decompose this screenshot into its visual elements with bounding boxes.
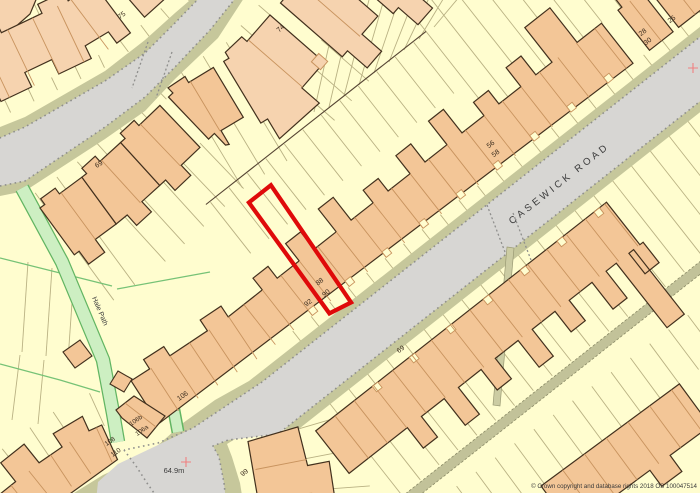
svg-text:64.9m: 64.9m (164, 466, 185, 475)
svg-text:© Crown copyright and database: © Crown copyright and database rights 20… (531, 483, 697, 490)
